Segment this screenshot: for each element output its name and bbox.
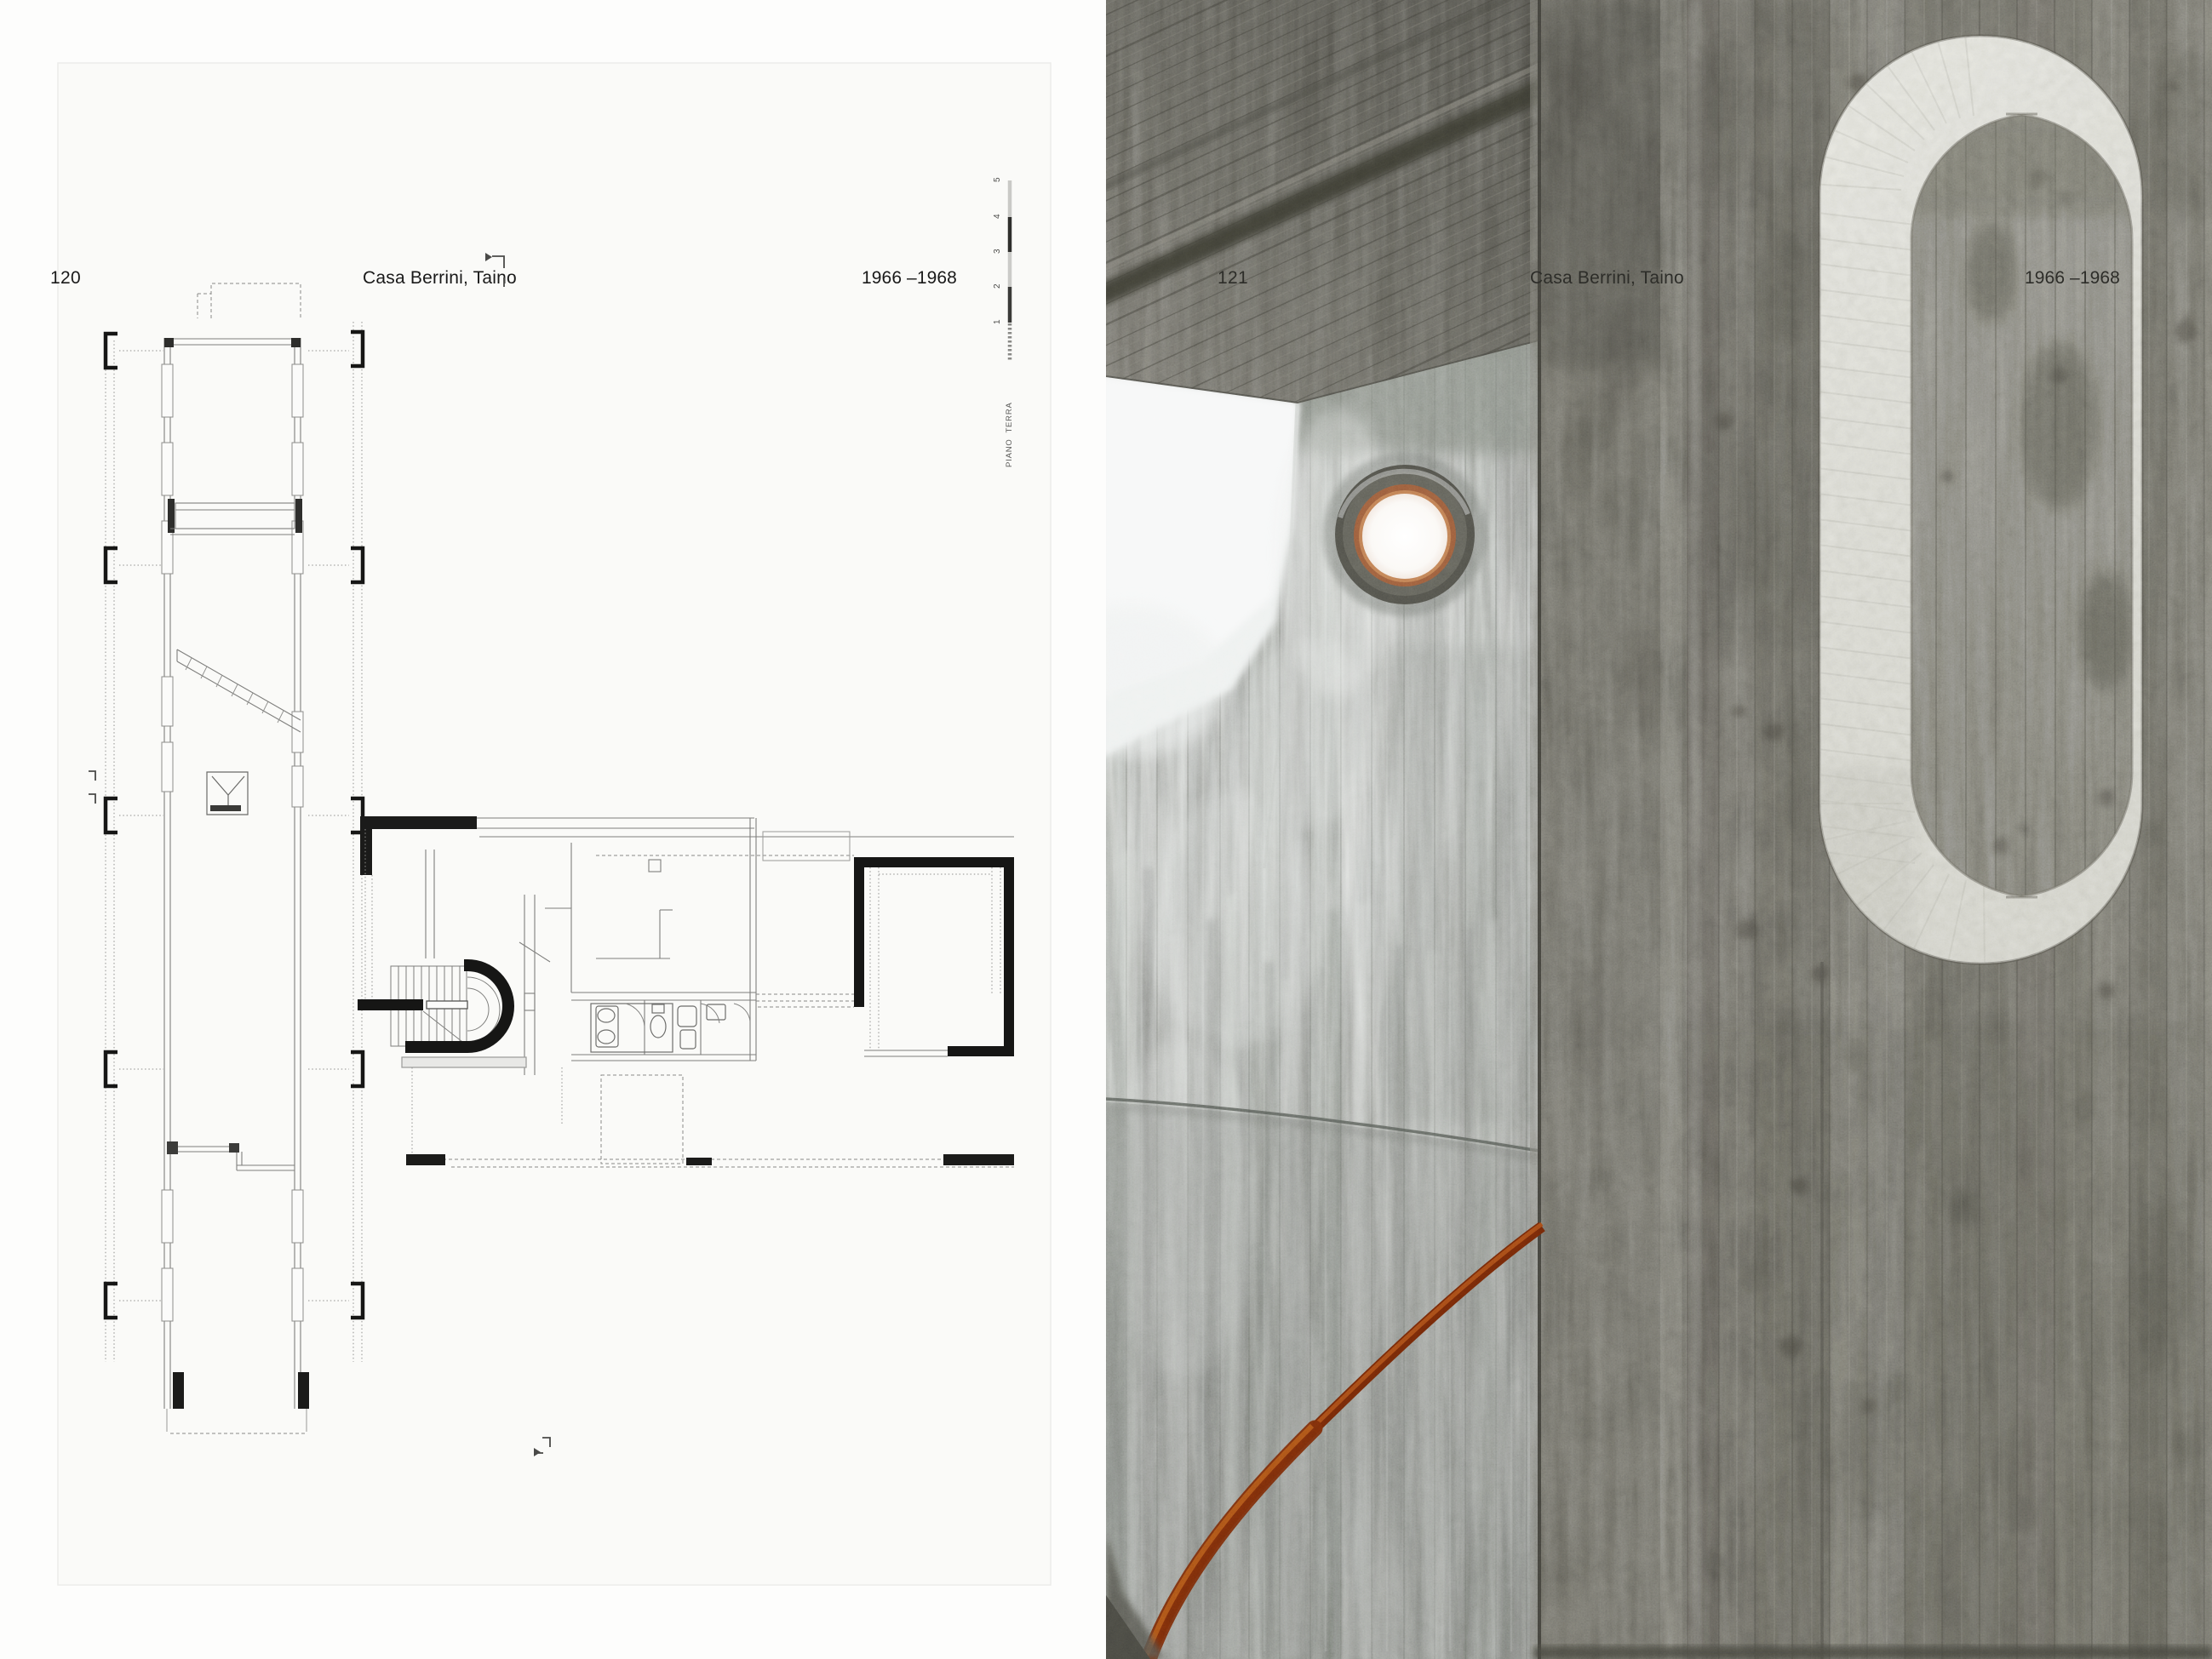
svg-text:Casa Berrini, Taino: Casa Berrini, Taino — [363, 268, 517, 288]
svg-text:120: 120 — [50, 268, 81, 288]
svg-text:2: 2 — [993, 283, 1002, 289]
svg-text:4: 4 — [993, 214, 1002, 219]
svg-text:1: 1 — [993, 319, 1002, 324]
svg-text:5: 5 — [993, 177, 1002, 182]
svg-text:PIANO TERRA: PIANO TERRA — [1005, 402, 1014, 467]
svg-text:1966 –1968: 1966 –1968 — [2025, 268, 2120, 288]
svg-text:1966 –1968: 1966 –1968 — [862, 268, 957, 288]
svg-text:Casa Berrini, Taino: Casa Berrini, Taino — [1530, 268, 1684, 288]
svg-text:3: 3 — [993, 249, 1002, 254]
svg-text:121: 121 — [1218, 268, 1248, 288]
